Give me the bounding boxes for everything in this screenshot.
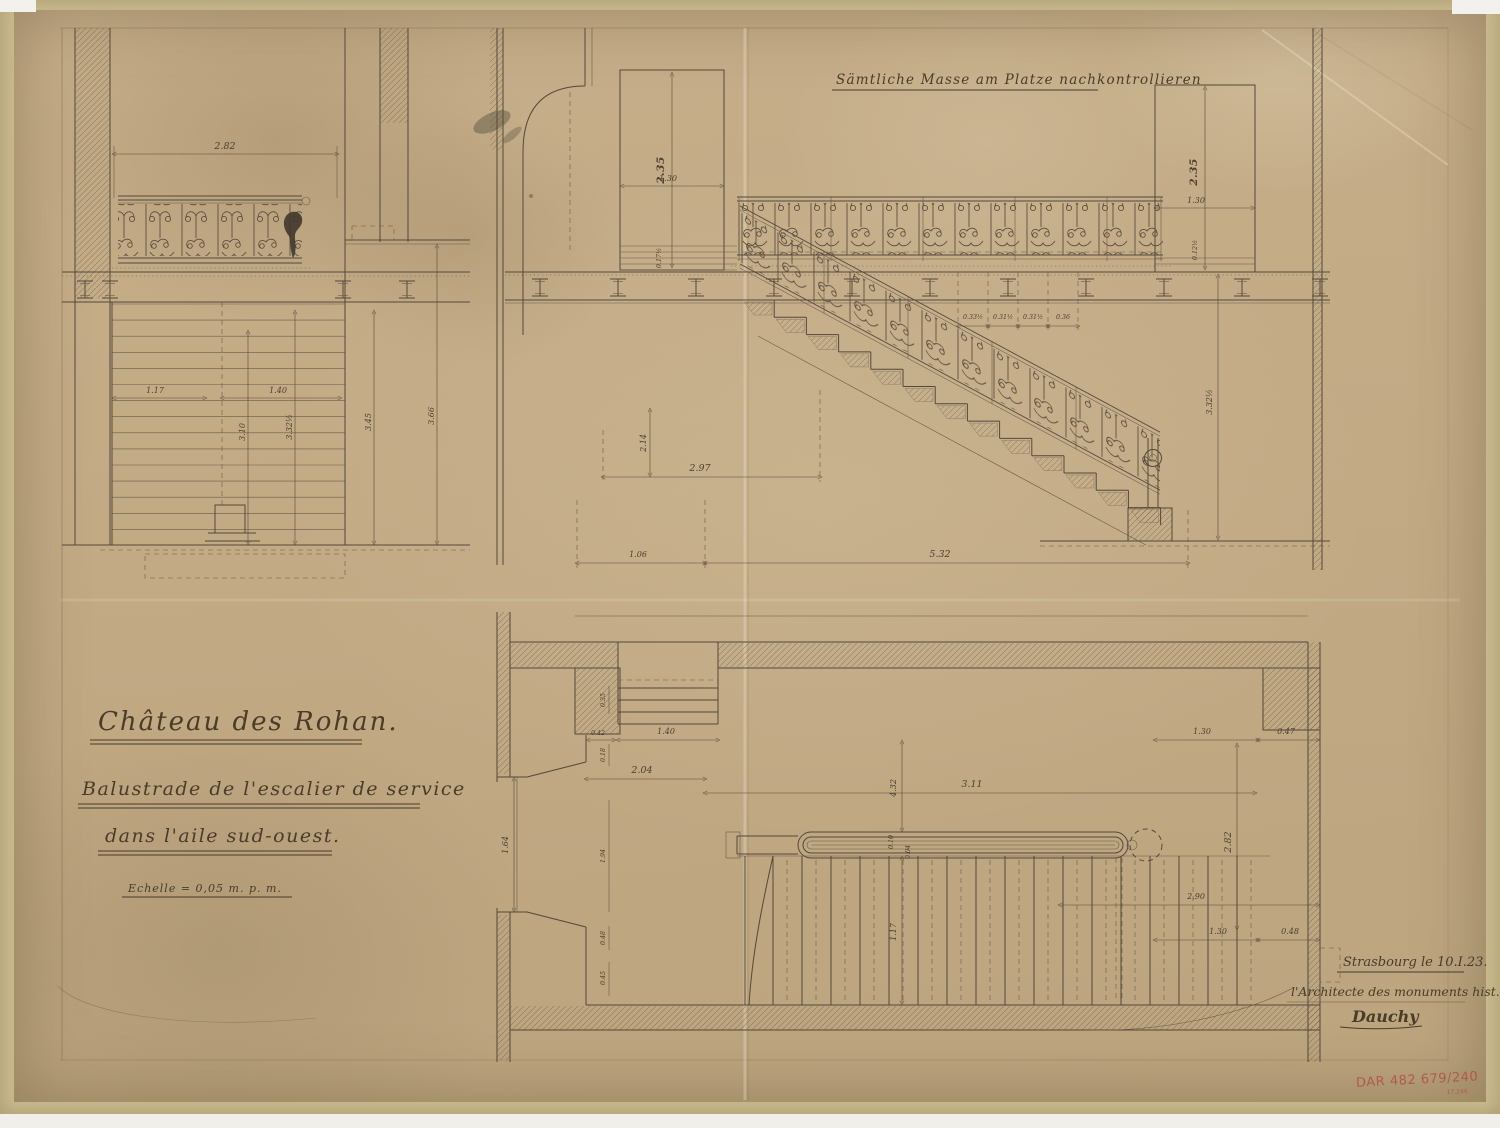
- dim-landing-bottom: 1.06: [629, 550, 647, 559]
- dim-h1: 3.10: [238, 423, 247, 441]
- stair-front-elevation: [62, 242, 470, 578]
- dim-door-right-sill: 0.12½: [1192, 240, 1199, 260]
- balcony-elevation-view: 2.82: [62, 28, 470, 578]
- archive-stamp-small: 17.246: [1447, 1088, 1469, 1096]
- top-note: Sämtliche Masse am Platze nachkontrollie…: [832, 72, 1202, 90]
- dim-left2: 0.18: [600, 748, 607, 762]
- paper-edges-and-creases: [60, 28, 1472, 1100]
- dim-run-top: 2.97: [688, 463, 711, 474]
- dim-h3: 3.45: [364, 413, 373, 431]
- dim-door-right-width: 1.30: [1187, 196, 1205, 205]
- dim-step1: 0.33½: [963, 314, 983, 321]
- dim-step3: 0.31½: [1023, 314, 1043, 321]
- signature: Dauchy: [1351, 1007, 1420, 1026]
- place-date: Strasbourg le 10.I.23.: [1343, 955, 1488, 970]
- dim-run: 3.11: [961, 779, 982, 790]
- dim-right-bot2: 0.48: [1281, 927, 1299, 936]
- dim-door: 1.40: [657, 727, 675, 736]
- ink-dot: [529, 194, 533, 198]
- dim-right-top2: 0.47: [1277, 727, 1296, 736]
- dim-door-left-step: 0.17½: [656, 248, 663, 268]
- top-note-text: Sämtliche Masse am Platze nachkontrollie…: [836, 72, 1202, 88]
- left-door-opening: 2.35 1.30 0.17½: [620, 70, 737, 270]
- dim-rail1: 0.10: [888, 835, 895, 849]
- pencil-curve: [58, 986, 316, 1022]
- dim-door-left-width: 1.30: [659, 174, 677, 183]
- dim-h2: 3.32½: [285, 414, 294, 440]
- dim-run-bottom: 5.32: [929, 549, 950, 560]
- dim-right-width: 2.90: [1186, 892, 1205, 901]
- dim-step2: 0.31½: [993, 314, 1013, 321]
- dim-left4: 0.48: [600, 931, 607, 945]
- scale-note: Echelle = 0,05 m. p. m.: [127, 882, 282, 895]
- dim-step4: 0.36: [1056, 314, 1070, 321]
- dim-tread: 1.17: [889, 922, 898, 941]
- dim-jamb: 0.42: [591, 730, 605, 737]
- dim-rise: 2.14: [639, 434, 648, 453]
- architectural-drawing-canvas: 2.82: [0, 0, 1500, 1128]
- architect-line: l'Architecte des monuments hist.: [1291, 984, 1500, 999]
- dim-window: 1.64: [501, 836, 510, 854]
- balcony-balustrade: [112, 196, 312, 268]
- title-block: Château des Rohan. Balustrade de l'escal…: [78, 707, 466, 897]
- drawing-title-line2: Balustrade de l'escalier de service: [81, 778, 466, 800]
- dim-right-top1: 1.30: [1193, 727, 1211, 736]
- dim-balcony-width: 2.82: [213, 141, 235, 152]
- right-door-opening: 2.35 1.30 0.12½: [1155, 85, 1255, 272]
- dim-right-bot1: 1.30: [1209, 927, 1227, 936]
- dim-right-height: 3.32½: [1205, 389, 1214, 415]
- archive-stamp: DAR 482 679/240 17.246: [1356, 1069, 1479, 1100]
- drawing-title-line3: dans l'aile sud-ouest.: [105, 825, 341, 847]
- scanned-drawing-sheet: 2.82: [0, 0, 1500, 1128]
- dim-left5: 0.45: [600, 971, 607, 985]
- dim-rail2: 0.04: [905, 845, 912, 859]
- dim-step-depth: 0.35: [600, 693, 607, 707]
- upper-floor-structure: [505, 272, 1330, 303]
- drawing-title-line1: Château des Rohan.: [98, 707, 399, 737]
- stair-elevation-view: 2.35 1.30 0.17½ 2.35 1.30 0.12½: [490, 28, 1330, 570]
- dim-landing: 1.40: [269, 386, 287, 395]
- plan-view: 1.64: [497, 612, 1340, 1062]
- plan-top-door-steps: [618, 642, 718, 724]
- step-dimensions: 0.33½ 0.31½ 0.31½ 0.36: [958, 272, 1078, 330]
- ink-smudge: [500, 124, 524, 146]
- dim-door-right-height: 2.35: [1188, 158, 1200, 187]
- dim-depth: 4.32: [889, 779, 898, 798]
- plan-stair-treads: [737, 856, 1270, 1005]
- dim-right-side: 2.82: [1223, 831, 1234, 853]
- dim-h4: 3.66: [427, 407, 436, 425]
- dim-recess: 2.04: [630, 765, 652, 776]
- right-wall: [1313, 28, 1322, 570]
- dim-left3: 1.94: [600, 849, 607, 863]
- dim-tread-width: 1.17: [146, 386, 165, 395]
- balcony-dimensions: 1.17 1.40 3.10 3.32½ 3.45 3.66: [114, 246, 437, 543]
